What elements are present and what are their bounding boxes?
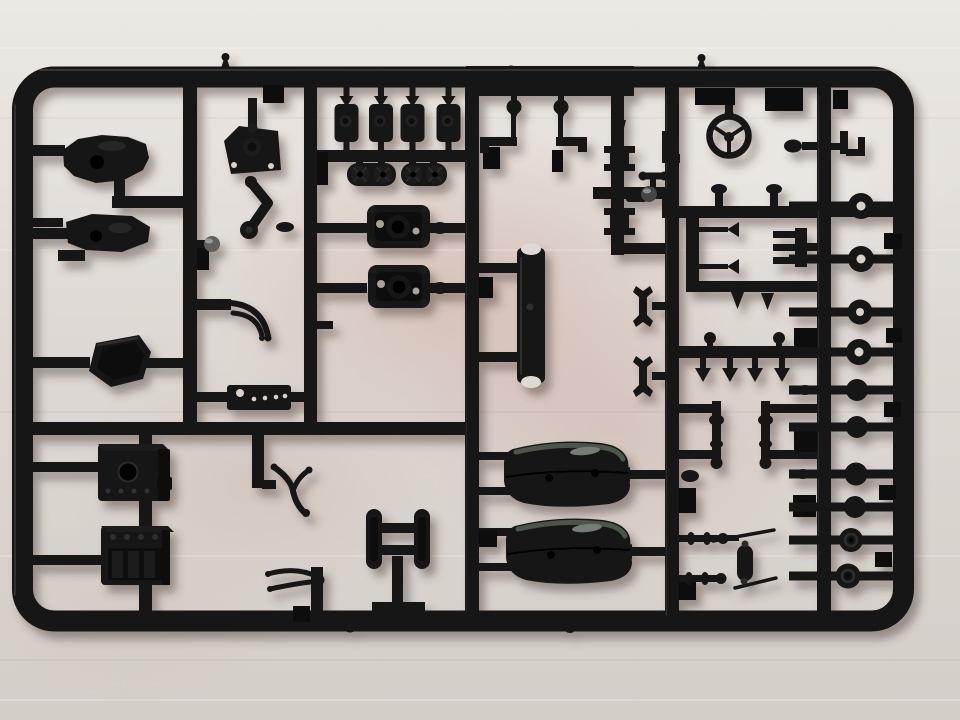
engine-block-1 <box>98 444 172 501</box>
photo-model-kit-sprue: Photograph of a black injection-moulded … <box>0 0 960 720</box>
bucket-seat-1 <box>504 441 630 506</box>
dome-cylinder <box>626 186 657 202</box>
bucket-seat-2 <box>506 518 632 583</box>
sprue-photo-svg <box>0 0 960 720</box>
oval-bead <box>784 140 802 153</box>
h-axle-frame <box>366 509 430 619</box>
engine-block-2 <box>101 526 174 585</box>
perforated-plate <box>227 385 291 410</box>
